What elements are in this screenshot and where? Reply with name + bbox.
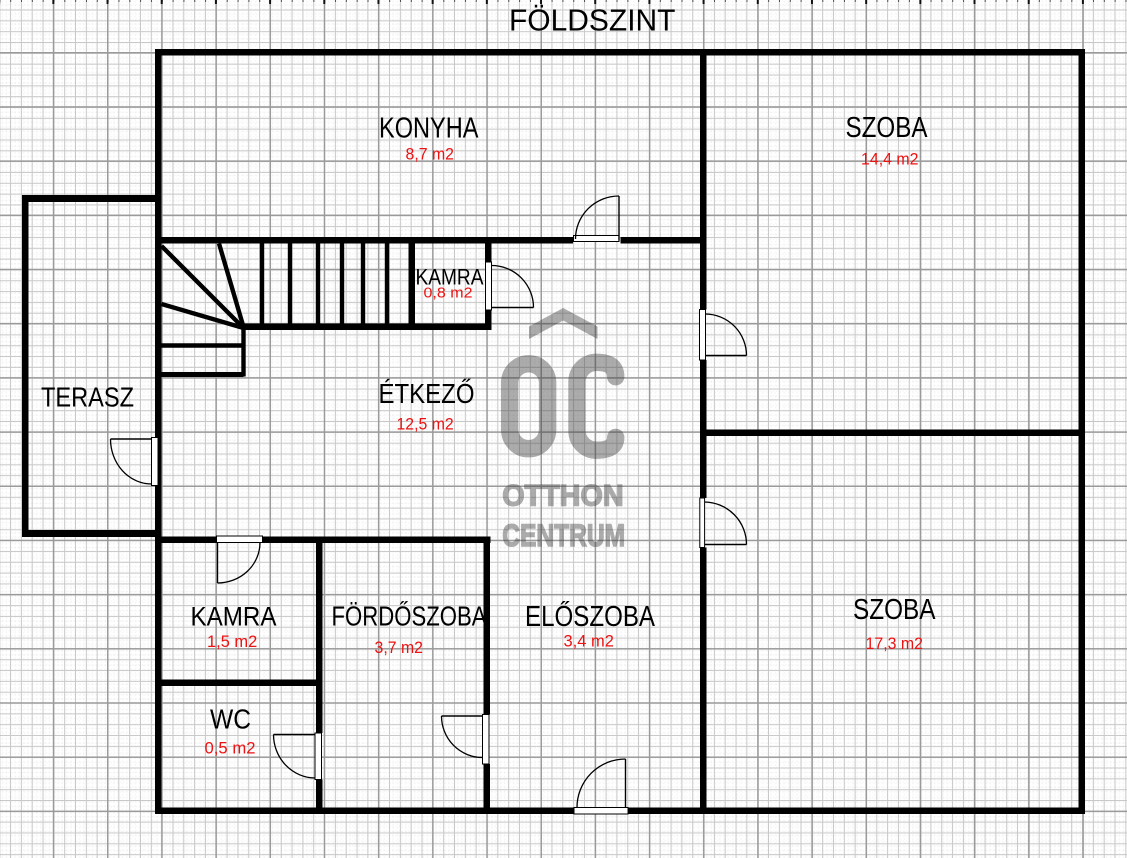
svg-text:8,7 m2: 8,7 m2 bbox=[406, 144, 455, 163]
svg-text:WC: WC bbox=[210, 703, 251, 734]
svg-text:OTTHON: OTTHON bbox=[502, 479, 623, 512]
svg-text:FÖLDSZINT: FÖLDSZINT bbox=[509, 3, 676, 38]
svg-text:FÖRDŐSZOBA: FÖRDŐSZOBA bbox=[332, 601, 487, 632]
svg-text:14,4 m2: 14,4 m2 bbox=[861, 150, 919, 169]
svg-text:KAMRA: KAMRA bbox=[191, 602, 277, 632]
svg-text:3,7 m2: 3,7 m2 bbox=[375, 638, 424, 657]
svg-text:ELŐSZOBA: ELŐSZOBA bbox=[525, 601, 655, 633]
svg-text:KONYHA: KONYHA bbox=[379, 112, 479, 144]
svg-text:17,3 m2: 17,3 m2 bbox=[866, 634, 924, 653]
svg-text:0,5 m2: 0,5 m2 bbox=[205, 739, 256, 758]
svg-text:0,8 m2: 0,8 m2 bbox=[424, 286, 473, 302]
svg-text:TERASZ: TERASZ bbox=[41, 381, 134, 412]
svg-text:CENTRUM: CENTRUM bbox=[502, 517, 625, 553]
svg-text:SZOBA: SZOBA bbox=[853, 594, 936, 626]
svg-text:SZOBA: SZOBA bbox=[846, 112, 928, 144]
svg-text:ÉTKEZŐ: ÉTKEZŐ bbox=[379, 378, 475, 409]
svg-text:1,5 m2: 1,5 m2 bbox=[207, 632, 257, 651]
svg-text:12,5 m2: 12,5 m2 bbox=[397, 415, 454, 434]
svg-text:3,4 m2: 3,4 m2 bbox=[564, 632, 614, 651]
